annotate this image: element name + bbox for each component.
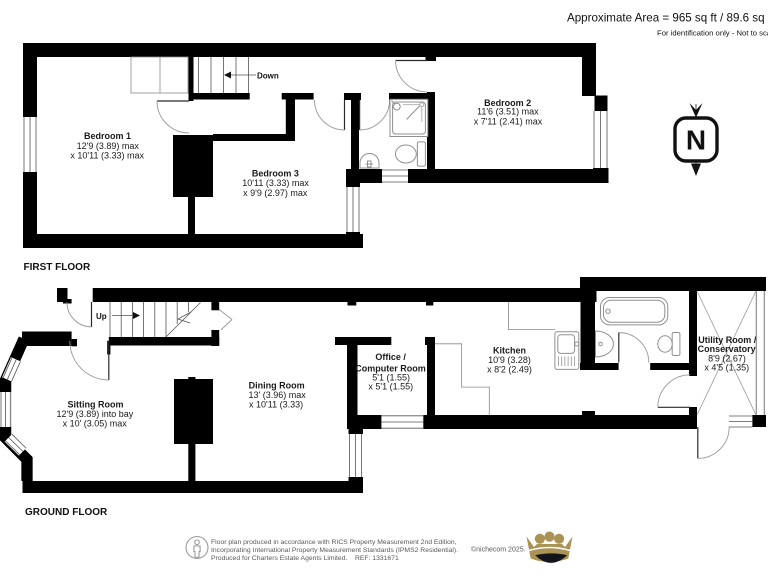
svg-text:13' (3.96) max: 13' (3.96) max (248, 390, 306, 400)
svg-text:11'6 (3.51) max: 11'6 (3.51) max (477, 107, 539, 117)
svg-text:Kitchen: Kitchen (493, 346, 526, 356)
svg-text:x 9'9 (2.97) max: x 9'9 (2.97) max (243, 188, 308, 198)
svg-text:Produced for Charters Estate A: Produced for Charters Estate Agents Limi… (211, 555, 399, 562)
svg-text:Floor plan produced in accorda: Floor plan produced in accordance with R… (211, 539, 457, 546)
svg-text:Approximate Area = 965 sq ft /: Approximate Area = 965 sq ft / 89.6 sq m (567, 12, 768, 25)
svg-text:FIRST FLOOR: FIRST FLOOR (24, 262, 91, 273)
svg-text:GROUND FLOOR: GROUND FLOOR (25, 507, 108, 518)
svg-text:Up: Up (96, 312, 107, 321)
svg-text:x 10'11 (3.33) max: x 10'11 (3.33) max (70, 151, 144, 161)
svg-text:x 4'5 (1.35): x 4'5 (1.35) (704, 363, 749, 373)
svg-text:Dining Room: Dining Room (249, 380, 305, 390)
svg-text:x 7'11 (2.41) max: x 7'11 (2.41) max (474, 117, 543, 127)
svg-text:x 8'2 (2.49): x 8'2 (2.49) (487, 364, 532, 374)
svg-text:Incorporating International Pr: Incorporating International Property Mea… (211, 547, 458, 554)
svg-text:For identification only - Not: For identification only - Not to scale (657, 28, 768, 37)
svg-text:Conservatory: Conservatory (698, 344, 756, 354)
svg-text:Bedroom 3: Bedroom 3 (252, 169, 299, 179)
svg-text:x 5'1 (1.55): x 5'1 (1.55) (368, 381, 413, 391)
svg-text:x 10' (3.05) max: x 10' (3.05) max (63, 419, 128, 429)
svg-text:12'9 (3.89) max: 12'9 (3.89) max (77, 141, 140, 151)
svg-text:Office /: Office / (375, 352, 406, 362)
svg-text:Bedroom 1: Bedroom 1 (84, 131, 131, 141)
svg-text:Down: Down (257, 72, 279, 81)
svg-text:N: N (686, 125, 706, 156)
svg-text:10'11 (3.33) max: 10'11 (3.33) max (242, 178, 309, 188)
svg-text:©nichecom 2025.: ©nichecom 2025. (471, 546, 526, 554)
svg-text:x 10'11 (3.33): x 10'11 (3.33) (249, 400, 303, 410)
svg-text:12'9 (3.89) into bay: 12'9 (3.89) into bay (57, 409, 134, 419)
